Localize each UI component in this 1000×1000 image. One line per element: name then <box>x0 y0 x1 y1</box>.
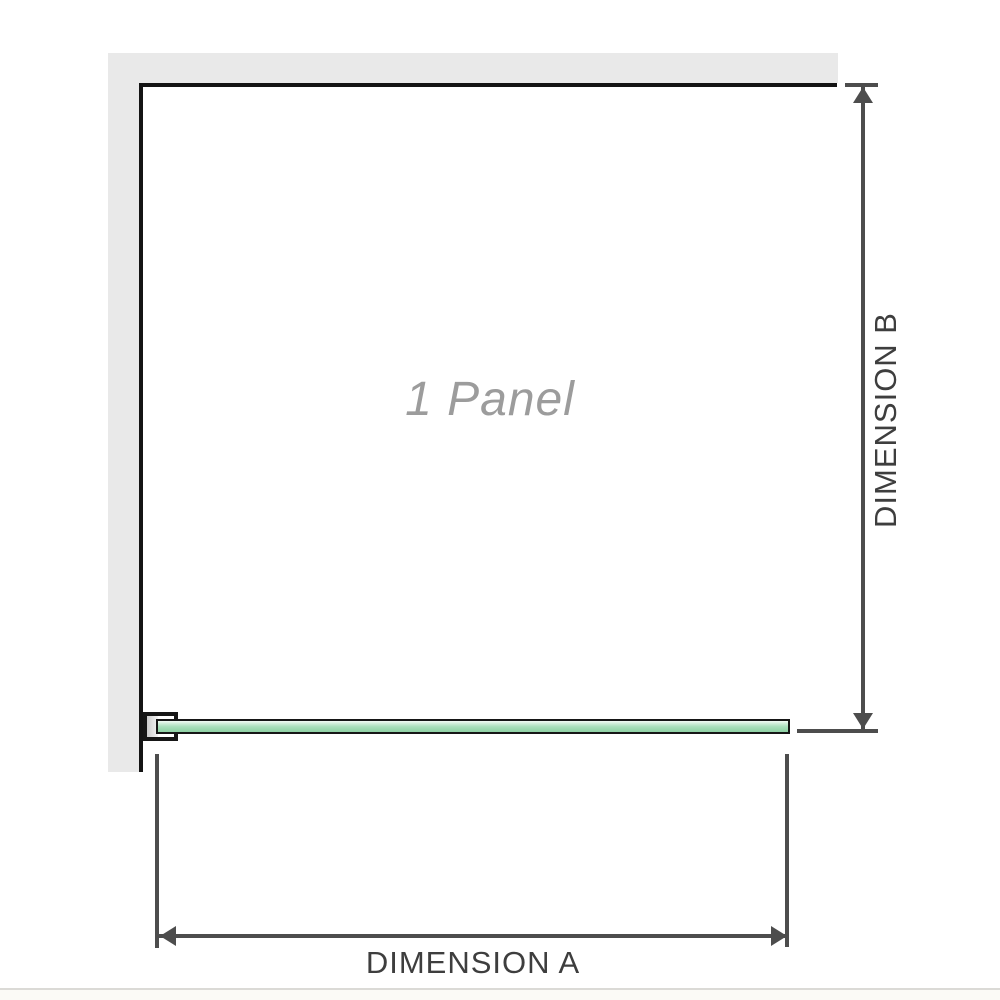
glass-panel <box>156 719 790 734</box>
arrow-down-icon <box>853 713 873 729</box>
dimension-a-label: DIMENSION A <box>165 945 781 981</box>
panel-count-label: 1 Panel <box>143 372 837 427</box>
dimension-b-label: DIMENSION B <box>869 290 903 550</box>
wall-left-band <box>108 53 141 772</box>
dimension-a-extension-right <box>785 754 789 947</box>
footer-strip <box>0 990 1000 1000</box>
arrow-right-icon <box>771 926 787 946</box>
wall-inner-edge-left <box>139 83 143 772</box>
wall-inner-edge-top <box>139 83 837 87</box>
wall-top-band <box>108 53 838 83</box>
diagram-canvas: 1 Panel DIMENSION B DIMENSION A <box>0 0 1000 1000</box>
dimension-b-line <box>861 86 865 731</box>
arrow-up-icon <box>853 87 873 103</box>
dimension-b-tick-bottom <box>797 729 878 733</box>
dimension-a-extension-left <box>155 754 159 948</box>
arrow-left-icon <box>160 926 176 946</box>
dimension-a-line <box>159 934 787 938</box>
